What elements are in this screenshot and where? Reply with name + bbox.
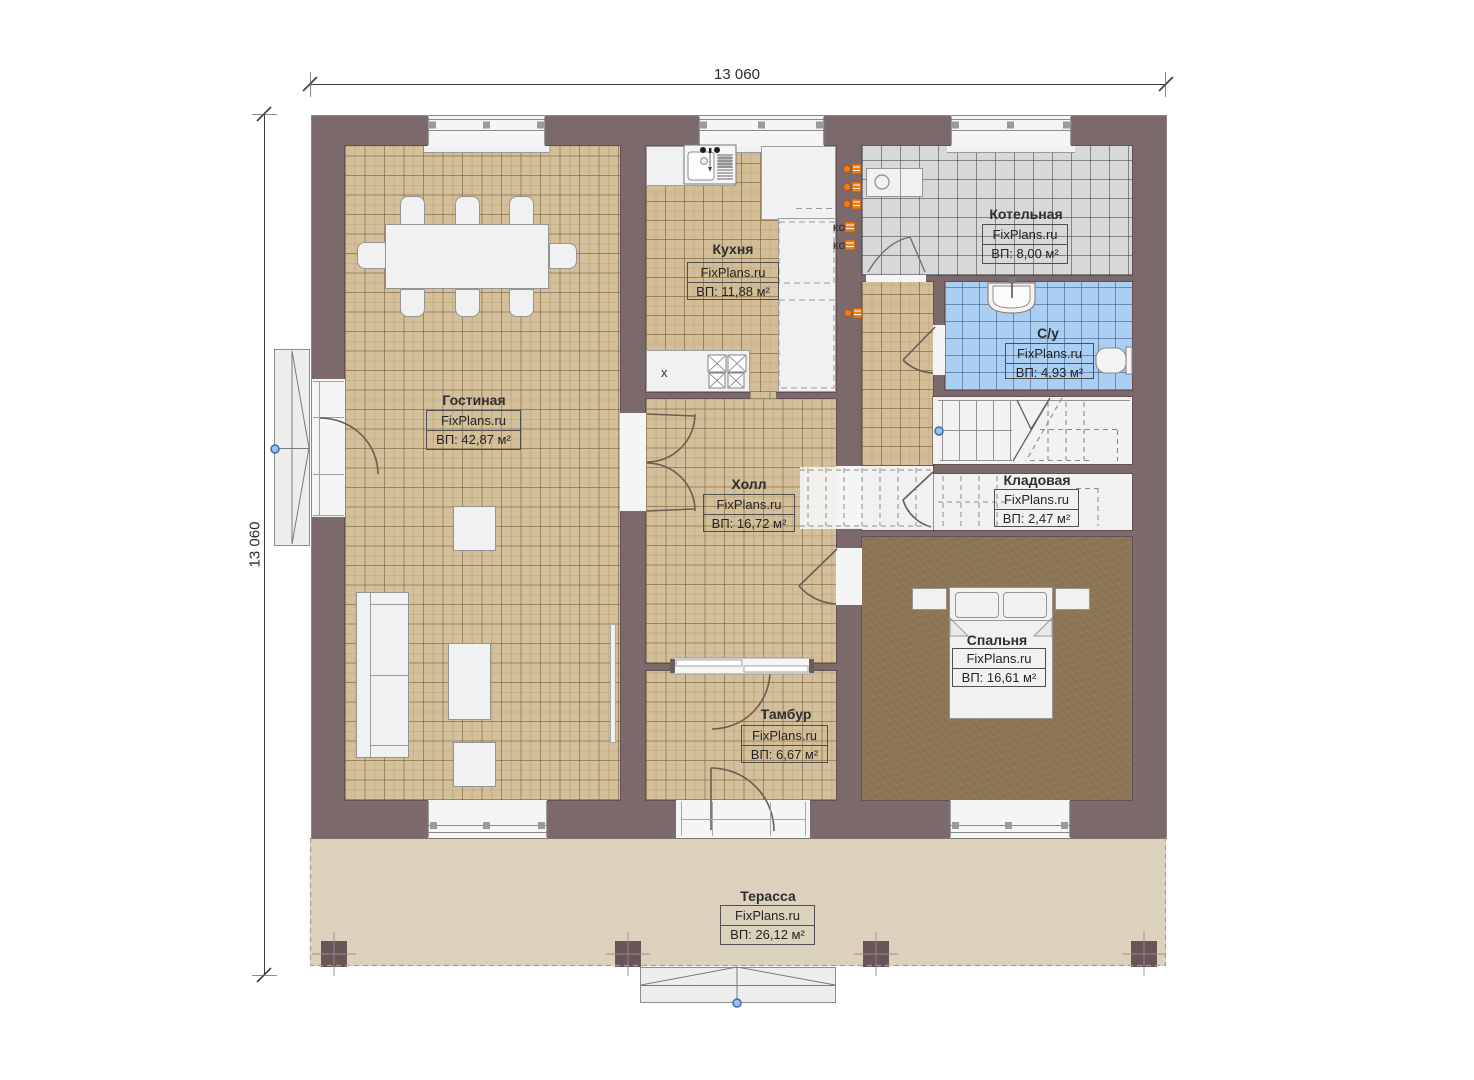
svg-text:x: x [661,365,668,380]
svg-text:КО: КО [833,223,846,233]
svg-text:КО: КО [833,241,846,251]
